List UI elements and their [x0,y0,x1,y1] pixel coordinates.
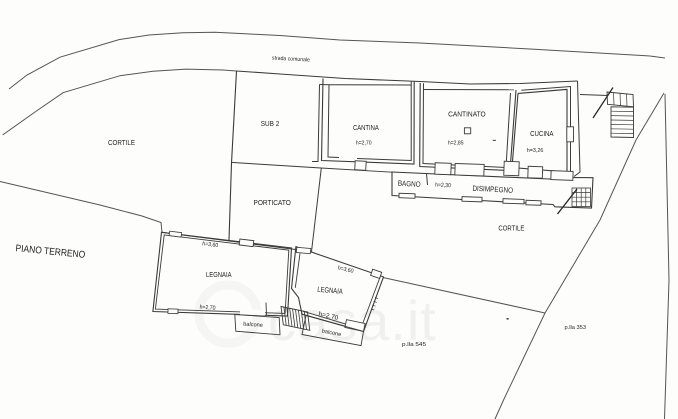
svg-text:h=3,26: h=3,26 [527,148,544,154]
svg-text:PORTICATO: PORTICATO [254,198,291,207]
svg-text:BAGNO: BAGNO [398,179,421,189]
svg-text:CUCINA: CUCINA [530,129,554,138]
svg-text:SUB 2: SUB 2 [261,119,280,128]
svg-text:h=2,85: h=2,85 [448,140,464,146]
svg-text:LEGNAIA: LEGNAIA [206,270,232,279]
svg-text:CORTILE: CORTILE [498,223,524,232]
svg-text:h=2,30: h=2,30 [435,182,451,189]
svg-text:CANTINATO: CANTINATO [448,109,486,118]
svg-text:h=2,70: h=2,70 [356,141,372,147]
svg-text:p.lla 545: p.lla 545 [402,342,426,348]
svg-text:CANTINA: CANTINA [353,123,380,132]
svg-text:h=2,70: h=2,70 [199,305,215,312]
svg-text:p.lla 353: p.lla 353 [565,325,587,331]
svg-text:CORTILE: CORTILE [108,138,135,147]
